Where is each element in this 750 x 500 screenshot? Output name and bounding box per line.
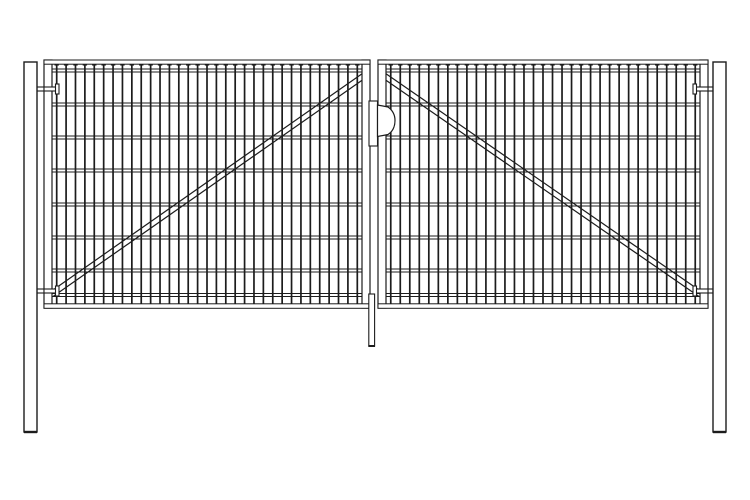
right-post: [713, 62, 726, 432]
left-post: [24, 62, 37, 432]
drawing-canvas: [0, 0, 750, 500]
gate-technical-drawing: [0, 0, 750, 500]
drop-rod: [368, 294, 375, 346]
